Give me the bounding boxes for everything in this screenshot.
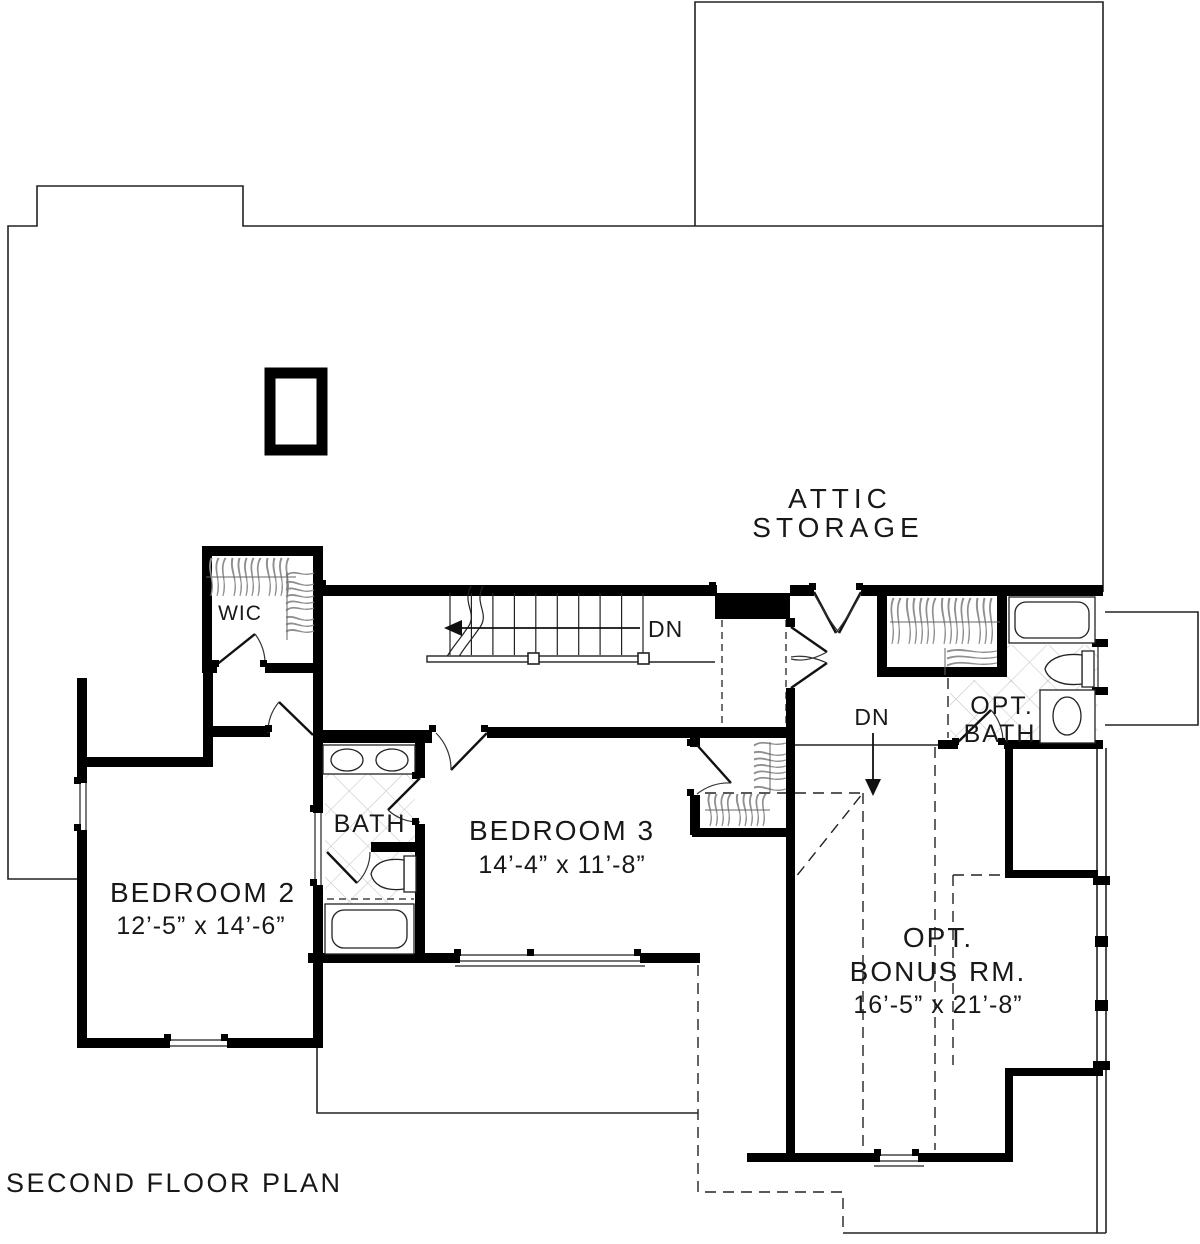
bedroom3-closet-door [697, 745, 731, 794]
bonus-label-1: OPT. [903, 922, 973, 953]
opt-bath-label-1: OPT. [970, 692, 1034, 720]
bedroom3-door [436, 733, 487, 770]
bedroom3-dims: 14’-4” x 11’-8” [478, 851, 645, 879]
wic-label: WIC [218, 602, 262, 625]
bedroom2-dims: 12’-5” x 14’-6” [116, 912, 285, 940]
bonus-window [874, 1155, 924, 1166]
fixtures [323, 597, 1095, 954]
bath-tub [325, 904, 414, 954]
second-floor-plan-drawing: ATTIC STORAGE WIC DN DN OPT. BATH BEDROO… [0, 0, 1200, 1244]
staircase [427, 586, 649, 664]
bath-label: BATH [334, 810, 407, 838]
attic-double-doors [814, 592, 861, 633]
bedroom3-window [455, 955, 645, 966]
bonus-stairs-arrow [865, 733, 881, 796]
plan-title: SECOND FLOOR PLAN [6, 1168, 343, 1198]
bonus-label-2: BONUS RM. [850, 956, 1027, 987]
bedroom2-left-window [80, 783, 86, 830]
stairs-dn-label: DN [648, 616, 683, 642]
bedroom2-door [268, 702, 313, 735]
hall-double-doors [791, 627, 827, 688]
bedroom2-bottom-window [170, 1040, 227, 1046]
opt-bath-vanity [1040, 690, 1095, 743]
attic-storage-label-1: ATTIC [788, 483, 892, 514]
floor-plan-page: ATTIC STORAGE WIC DN DN OPT. BATH BEDROO… [0, 0, 1200, 1244]
opt-bath-label-2: BATH [964, 720, 1037, 748]
bath-tile-floor [325, 645, 1098, 904]
bedroom3-label: BEDROOM 3 [469, 815, 655, 846]
bath-sink-left [331, 749, 363, 771]
opt-bath-tub [1009, 597, 1095, 643]
chimney [270, 373, 322, 450]
bonus-dims: 16’-5” x 21’-8” [853, 991, 1022, 1019]
hall-dn-label: DN [854, 704, 889, 730]
bath-sink-right [376, 749, 408, 771]
ceiling-break-lines [327, 620, 1003, 1230]
wic-door [215, 634, 265, 666]
bedroom2-label: BEDROOM 2 [110, 877, 296, 908]
attic-storage-label-2: STORAGE [752, 512, 923, 543]
